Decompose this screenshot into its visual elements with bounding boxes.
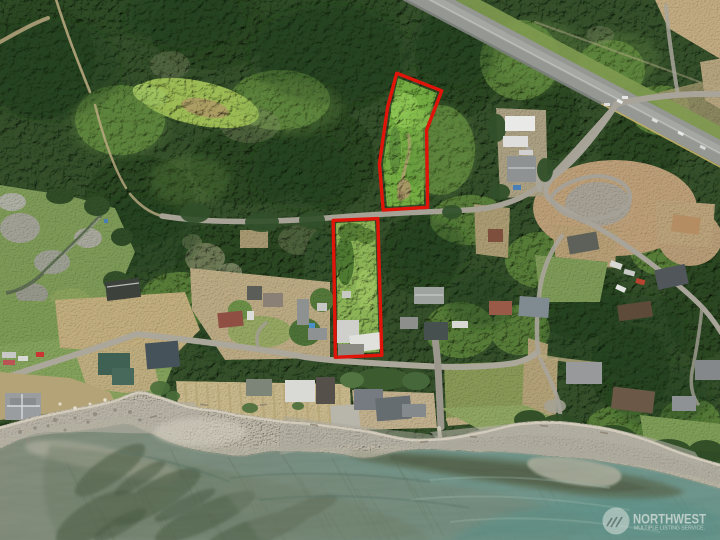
svg-text:MULTIPLE LISTING SERVICE.: MULTIPLE LISTING SERVICE. bbox=[634, 526, 705, 532]
svg-text:NORTHWEST: NORTHWEST bbox=[633, 512, 706, 527]
